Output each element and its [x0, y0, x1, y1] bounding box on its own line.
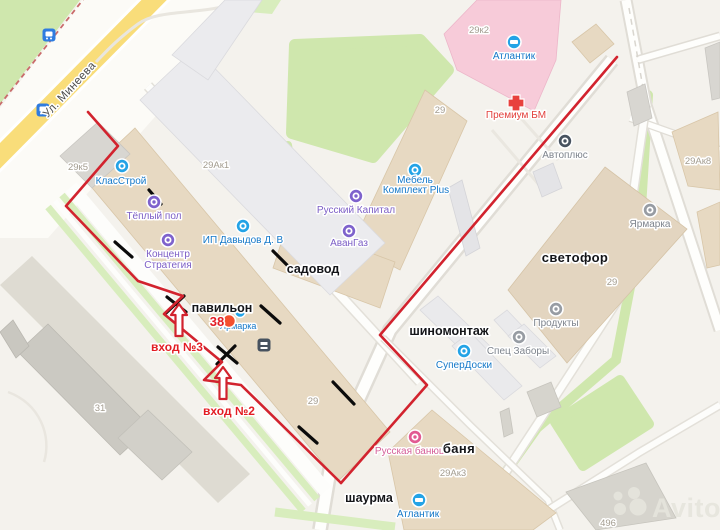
- pavilion-number: 38: [210, 314, 224, 329]
- davydov-cart-icon[interactable]: [236, 219, 250, 233]
- avtoplus-car-icon[interactable]: [558, 134, 572, 148]
- area-label-svetofor: светофор: [542, 250, 609, 265]
- poi-label-yarmarka[interactable]: Ярмарка: [630, 219, 671, 230]
- number-29-top: 29: [435, 105, 446, 116]
- number-29ak3: 29Ак3: [440, 468, 466, 479]
- produkty-icon[interactable]: [549, 302, 563, 316]
- area-label-banya: баня: [443, 441, 475, 456]
- map-canvas[interactable]: Ярмарка Ул. Минеева КласСтрой Тёплый пол…: [0, 0, 720, 530]
- area-label-sadovod: садовод: [287, 262, 340, 276]
- tram-stop-icon[interactable]: [43, 29, 56, 42]
- entrance-2-label: вход №2: [203, 404, 255, 418]
- poi-label-koncentr-2[interactable]: Стратегия: [144, 260, 191, 271]
- avito-logo-dot: [630, 499, 647, 516]
- poi-label-superdoski[interactable]: СуперДоски: [436, 360, 492, 371]
- area-label-shaurma: шаурма: [345, 491, 394, 505]
- atlantik-bottom-icon[interactable]: [412, 493, 426, 507]
- number-29ak8: 29Ак8: [685, 156, 711, 167]
- avito-logo-dot: [614, 503, 626, 515]
- number-29-svetofor: 29: [607, 277, 618, 288]
- number-29k5: 29к5: [68, 162, 88, 173]
- avangaz-icon[interactable]: [342, 224, 356, 238]
- number-31: 31: [95, 403, 106, 414]
- poi-label-teply-pol[interactable]: Тёплый пол: [126, 211, 181, 222]
- number-496: 496: [600, 518, 616, 529]
- poi-label-mebel-2[interactable]: Комплект Plus: [383, 185, 449, 196]
- banyushka-icon[interactable]: [408, 430, 422, 444]
- avito-logo-dot: [614, 492, 623, 501]
- poi-label-avtoplus[interactable]: Автоплюс: [542, 150, 588, 161]
- poi-label-premium-bm[interactable]: Премиум БМ: [486, 110, 546, 121]
- russky-kapital-icon[interactable]: [349, 189, 363, 203]
- pavilion-pin-icon[interactable]: [223, 315, 236, 328]
- poi-label-avangaz[interactable]: АванГаз: [330, 238, 368, 249]
- klasstroy-cart-icon[interactable]: [115, 159, 129, 173]
- yarmarka-icon[interactable]: [643, 203, 657, 217]
- area-label-shinomontazh: шиномонтаж: [409, 324, 488, 338]
- terminal-icon[interactable]: [258, 339, 271, 352]
- superdoski-icon[interactable]: [457, 344, 471, 358]
- number-29-pavilion: 29: [308, 396, 319, 407]
- koncentr-icon[interactable]: [161, 233, 175, 247]
- poi-label-davydov[interactable]: ИП Давыдов Д. В: [203, 235, 284, 246]
- entrance-3-label: вход №3: [151, 340, 203, 354]
- spec-zabory-icon[interactable]: [512, 330, 526, 344]
- number-29ak1: 29Ак1: [203, 160, 229, 171]
- pavilion-label: павильон: [192, 301, 253, 315]
- number-29k2: 29к2: [469, 25, 489, 36]
- avito-logo-dot: [628, 487, 640, 499]
- poi-label-atlantik-bottom[interactable]: Атлантик: [397, 509, 440, 520]
- poi-label-produkty[interactable]: Продукты: [533, 318, 578, 329]
- poi-label-klasstroy[interactable]: КласСтрой: [96, 176, 147, 187]
- poi-label-spec-zabory[interactable]: Спец Заборы: [487, 345, 549, 357]
- map-screenshot: Ярмарка Ул. Минеева КласСтрой Тёплый пол…: [0, 0, 720, 530]
- poi-label-russky-kapital[interactable]: Русский Капитал: [317, 205, 395, 216]
- avito-watermark-text: Avito: [652, 493, 720, 523]
- poi-label-koncentr-1[interactable]: Концентр: [146, 249, 190, 260]
- teply-pol-icon[interactable]: [147, 195, 161, 209]
- atlantik-top-icon[interactable]: [507, 35, 521, 49]
- poi-label-atlantik-top[interactable]: Атлантик: [493, 51, 536, 62]
